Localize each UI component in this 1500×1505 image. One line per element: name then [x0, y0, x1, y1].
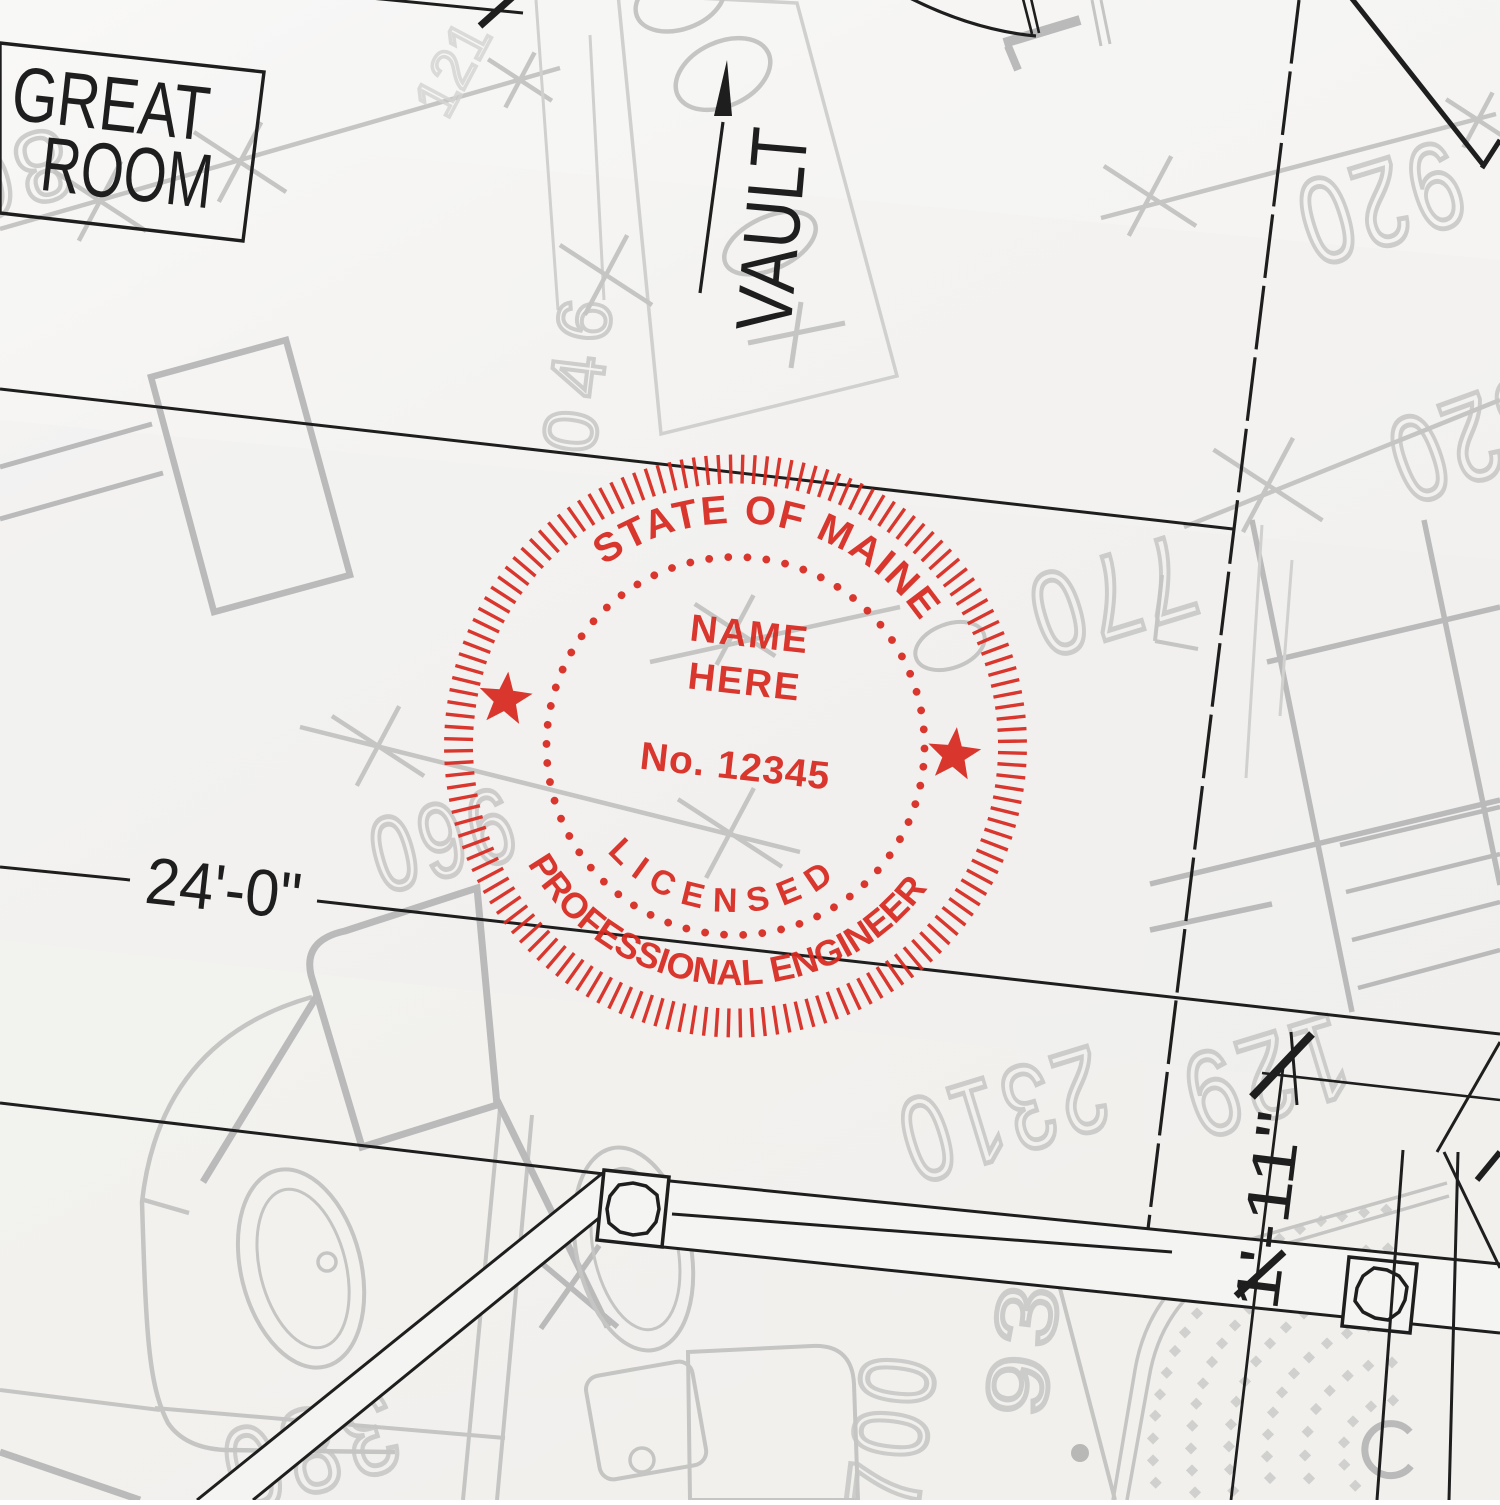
svg-text:VAULT: VAULT [718, 124, 824, 335]
svg-text:700: 700 [824, 1344, 960, 1500]
